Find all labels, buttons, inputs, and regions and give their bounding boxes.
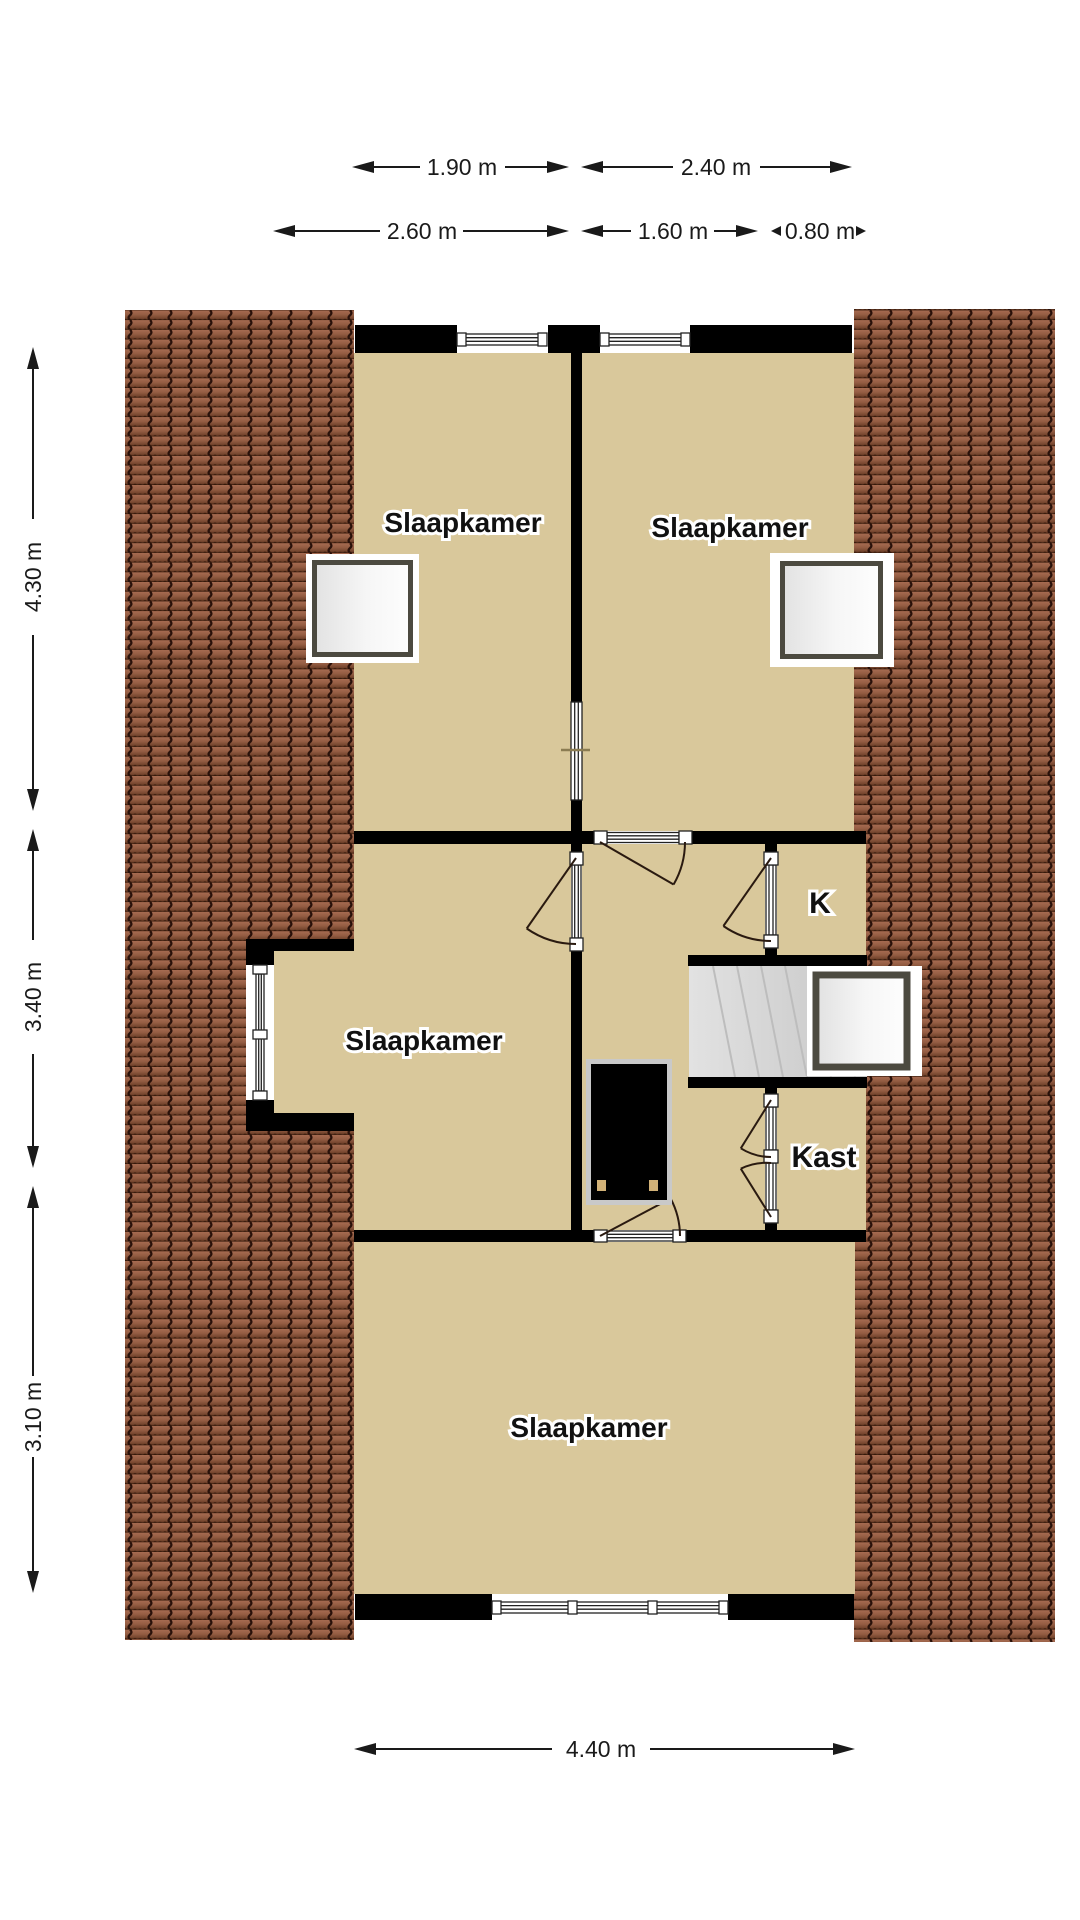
svg-text:0.80 m: 0.80 m — [785, 218, 855, 244]
svg-text:1.60 m: 1.60 m — [638, 218, 708, 244]
svg-text:3.40 m: 3.40 m — [20, 962, 46, 1032]
svg-text:2.40 m: 2.40 m — [681, 154, 751, 180]
svg-text:3.10 m: 3.10 m — [20, 1382, 46, 1452]
svg-text:Slaapkamer: Slaapkamer — [345, 1025, 502, 1056]
svg-text:Slaapkamer: Slaapkamer — [510, 1412, 667, 1443]
svg-text:K: K — [809, 887, 831, 920]
svg-text:Slaapkamer: Slaapkamer — [651, 512, 808, 543]
svg-text:4.40 m: 4.40 m — [566, 1736, 636, 1762]
svg-text:2.60 m: 2.60 m — [387, 218, 457, 244]
svg-text:Slaapkamer: Slaapkamer — [384, 507, 541, 538]
svg-text:4.30 m: 4.30 m — [20, 542, 46, 612]
svg-text:1.90 m: 1.90 m — [427, 154, 497, 180]
svg-text:Kast: Kast — [791, 1141, 856, 1174]
